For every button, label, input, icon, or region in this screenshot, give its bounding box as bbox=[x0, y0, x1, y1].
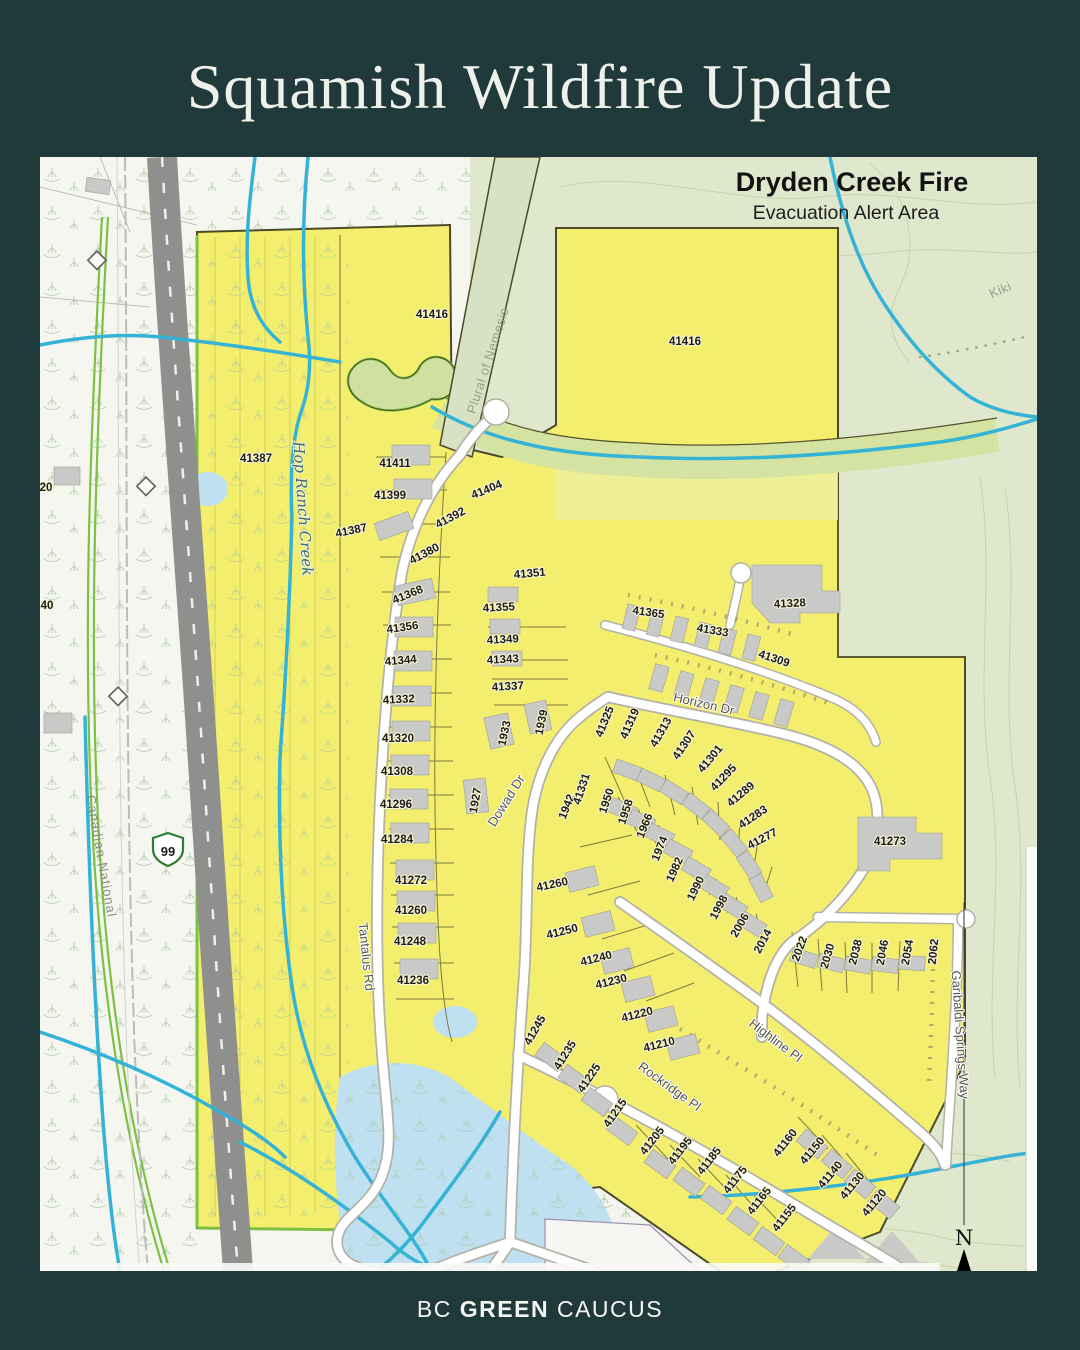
map-subtitle: Evacuation Alert Area bbox=[753, 202, 940, 224]
parcel-label-41355: 41355 bbox=[483, 601, 516, 615]
footer-suffix: CAUCUS bbox=[557, 1296, 663, 1322]
parcel-label-41349: 41349 bbox=[487, 633, 520, 647]
parcel-label-41296: 41296 bbox=[380, 799, 412, 811]
page-footer: BC GREEN CAUCUS bbox=[0, 1296, 1080, 1323]
edge-label-20: 20 bbox=[40, 482, 52, 494]
map-panel: 99 N Hop Ranch Creek Plural of NemesisKi… bbox=[40, 157, 1037, 1271]
north-label: N bbox=[955, 1226, 973, 1250]
parcel-label-41332: 41332 bbox=[383, 693, 416, 707]
map-margin-right bbox=[1026, 847, 1037, 1271]
parcel-label-41328: 41328 bbox=[774, 597, 807, 611]
parcel-label-41416: 41416 bbox=[669, 336, 701, 348]
parcel-label-41399: 41399 bbox=[374, 490, 406, 502]
map-title-block: Dryden Creek Fire Evacuation Alert Area bbox=[736, 167, 969, 224]
footer-prefix: BC bbox=[417, 1296, 452, 1322]
footer-brand: GREEN bbox=[460, 1296, 549, 1322]
parcel-label-41320: 41320 bbox=[382, 733, 414, 745]
page-title: Squamish Wildfire Update bbox=[0, 50, 1080, 124]
parcel-label-41411: 41411 bbox=[379, 458, 411, 470]
parcel-label-41273: 41273 bbox=[874, 836, 906, 848]
highway-shield-number: 99 bbox=[161, 844, 175, 859]
highway-99-shield-icon: 99 bbox=[153, 833, 183, 866]
pond-2 bbox=[433, 1006, 477, 1038]
parcel-label-41308: 41308 bbox=[381, 766, 414, 778]
parcel-label-41236: 41236 bbox=[397, 975, 429, 987]
edge-label-40: 40 bbox=[41, 600, 54, 612]
parcel-label-41248: 41248 bbox=[394, 936, 427, 948]
evacuation-map: 99 N Hop Ranch Creek Plural of NemesisKi… bbox=[40, 157, 1037, 1271]
parcel-label-41272: 41272 bbox=[395, 875, 427, 887]
map-margin-bottom bbox=[40, 1263, 940, 1271]
parcel-label-41260: 41260 bbox=[395, 905, 427, 917]
parcel-label-41387: 41387 bbox=[240, 453, 272, 465]
map-title: Dryden Creek Fire bbox=[736, 167, 969, 197]
parcel-label-41343: 41343 bbox=[487, 653, 520, 667]
parcel-label-41416: 41416 bbox=[416, 309, 448, 321]
marsh-texture-top bbox=[197, 157, 470, 235]
parcel-label-41284: 41284 bbox=[381, 834, 414, 846]
parcel-label-41337: 41337 bbox=[492, 680, 525, 694]
social-post: { "page": { "title": "Squamish Wildfire … bbox=[0, 0, 1080, 1350]
